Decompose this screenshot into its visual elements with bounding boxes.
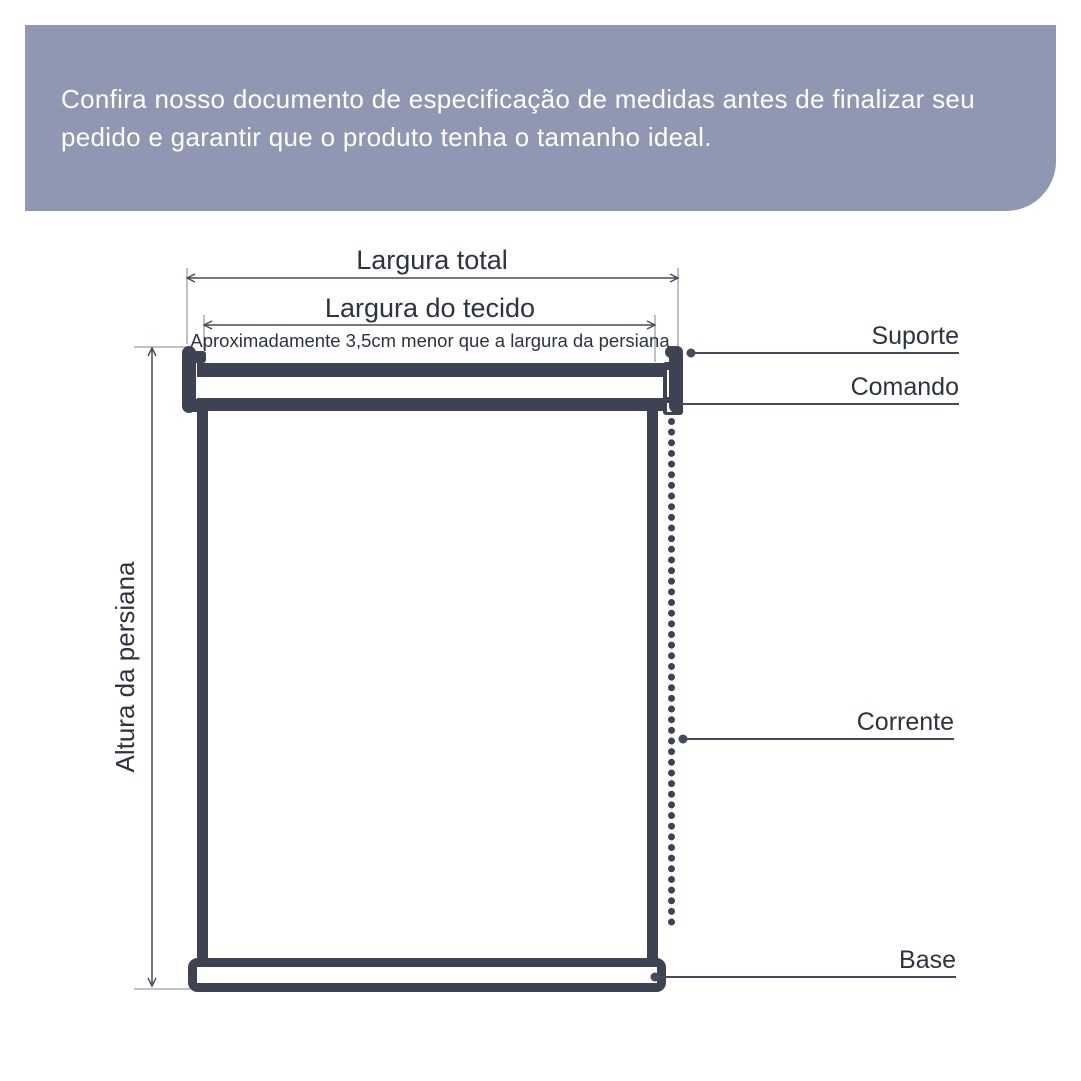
corrente-label: Corrente [857,708,954,736]
blind-measurement-diagram: Largura total Largura do tecido Aproxima… [0,0,1081,1081]
left-bracket-top-lip [190,351,206,363]
left-bracket-bottom-lip [190,399,202,412]
comando-label: Comando [851,373,959,401]
fabric-width-label: Largura do tecido [325,293,535,323]
page: Confira nosso documento de especificação… [0,0,1081,1081]
roller-tube [197,363,664,377]
fabric-left-edge [197,398,208,960]
fabric-right-edge [647,398,658,960]
suporte-label: Suporte [871,322,959,350]
total-width-label: Largura total [356,245,508,275]
right-bracket [669,346,683,413]
base-label: Base [899,946,956,974]
top-rail [197,398,664,411]
fabric-width-note: Aproximadamente 3,5cm menor que a largur… [190,330,670,351]
height-label: Altura da persiana [110,561,140,773]
bottom-base-bar [193,963,662,988]
